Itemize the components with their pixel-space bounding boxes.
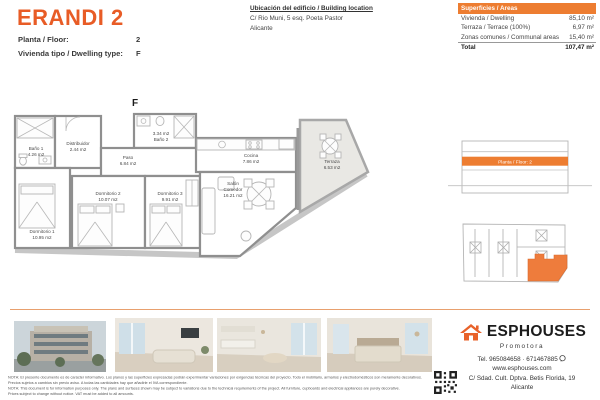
disclaimer: NOTA: El presente documento es de caráct… — [8, 375, 440, 397]
field-dwelling-type-label: Vivienda tipo / Dwelling type: — [18, 49, 136, 58]
building-location-heading: Ubicación del edificio / Building locati… — [250, 4, 420, 14]
room-banio2-name: Baño 2 — [154, 137, 169, 142]
areas-row-communal: Zonas comunes / Communal areas 15,40 m² — [458, 32, 596, 42]
room-dormitorio3-area: 9.91 m2 — [162, 197, 179, 202]
room-salon-name1: Salón — [227, 181, 239, 186]
qr-code — [434, 371, 457, 394]
areas-row-dwelling-label: Vivienda / Dwelling — [461, 15, 514, 22]
room-terraza-name: Terraza — [324, 159, 340, 164]
brand-block: ESPHOUSES Promotora Tel. 965084658 · 671… — [448, 322, 596, 393]
areas-row-total: Total 107,47 m² — [458, 43, 596, 53]
room-terraza-area: 6.53 m2 — [324, 165, 341, 170]
room-cocina-name: Cocina — [244, 153, 259, 158]
areas-row-total-label: Total — [461, 44, 476, 51]
brand-telephone: Tel. 965084658 · 671467885 — [448, 355, 596, 364]
building-location: Ubicación del edificio / Building locati… — [250, 4, 420, 34]
room-paso-name: Paso — [123, 155, 134, 160]
room-dormitorio2-area: 10.07 m2 — [98, 197, 118, 202]
brand-name: ESPHOUSES — [487, 323, 586, 341]
room-dormitorio2-name: Dormitorio 2 — [95, 191, 120, 196]
areas-row-terrace-value: 6,97 m² — [573, 24, 594, 31]
photo-kitchen-living-art — [217, 318, 321, 372]
building-location-address: C/ Rio Muni, 5 esq. Poeta Pastor — [250, 14, 420, 24]
areas-row-communal-value: 15,40 m² — [569, 34, 594, 41]
areas-table: Superficies / Areas Vivienda / Dwelling … — [458, 3, 596, 52]
areas-row-communal-label: Zonas comunes / Communal areas — [461, 34, 559, 41]
room-salon-name2: Comedor — [224, 187, 243, 192]
photo-kitchen-living — [217, 318, 321, 372]
brand-tagline: Promotora — [448, 343, 596, 350]
field-floor-label: Planta / Floor: — [18, 35, 136, 44]
room-distribuidor-area: 2.44 m2 — [70, 147, 87, 152]
areas-row-total-value: 107,47 m² — [565, 44, 594, 51]
brand-website[interactable]: www.esphouses.com — [448, 364, 596, 373]
field-dwelling-type: Vivienda tipo / Dwelling type:F — [18, 49, 141, 58]
room-banio1-area: 4.26 m2 — [28, 152, 45, 157]
floorplan-sheet: { "colors": { "accent": "#e85c26", "tabl… — [0, 0, 600, 400]
field-floor: Planta / Floor:2 — [18, 35, 140, 44]
room-banio1-name: Baño 1 — [29, 146, 44, 151]
areas-row-terrace-label: Terraza / Terrace (100%) — [461, 24, 530, 31]
esphouses-logo-icon — [458, 322, 484, 342]
brand-telephone-text: Tel. 965084658 · 671467885 — [478, 356, 558, 363]
photo-living-room — [115, 318, 213, 372]
room-dormitorio1-name: Dormitorio 1 — [29, 229, 54, 234]
field-dwelling-type-value: F — [136, 49, 141, 58]
building-location-city: Alicante — [250, 24, 420, 34]
room-paso-area: 6.84 m2 — [120, 161, 137, 166]
areas-row-terrace: Terraza / Terrace (100%) 6,97 m² — [458, 23, 596, 32]
room-dormitorio1-area: 10.95 m2 — [32, 235, 52, 240]
page-title: ERANDI 2 — [17, 5, 124, 31]
brand-address: C/ Sdad. Cult. Dptva. Betis Florida, 19 — [448, 374, 596, 383]
key-plan — [463, 224, 567, 282]
photo-building-exterior-art — [14, 321, 106, 372]
side-diagrams: Planta / Floor: 2 — [445, 135, 595, 305]
photo-bedroom-art — [327, 318, 432, 372]
room-dormitorio3-name: Dormitorio 3 — [157, 191, 182, 196]
building-section-diagram: Planta / Floor: 2 — [448, 141, 592, 193]
areas-table-title: Superficies / Areas — [458, 3, 596, 14]
photo-bedroom — [327, 318, 432, 372]
room-banio2-area: 3.34 m2 — [153, 131, 170, 136]
areas-row-dwelling: Vivienda / Dwelling 85,10 m² — [458, 14, 596, 23]
areas-row-dwelling-value: 85,10 m² — [569, 15, 594, 22]
photo-building-exterior — [14, 321, 106, 372]
orange-divider-line — [10, 309, 590, 310]
room-salon-area: 16.21 m2 — [223, 193, 243, 198]
photo-living-room-art — [115, 318, 213, 372]
room-distribuidor-name: Distribuidor — [66, 141, 90, 146]
brand-city: Alicante — [448, 383, 596, 392]
whatsapp-icon — [559, 355, 566, 362]
disclaimer-line-4: Prices subject to change without notice.… — [8, 391, 440, 396]
floor-plan: F — [8, 90, 373, 312]
section-floor-label: Planta / Floor: 2 — [498, 159, 532, 165]
room-cocina-area: 7.86 m2 — [243, 159, 260, 164]
field-floor-value: 2 — [136, 35, 140, 44]
unit-letter: F — [132, 98, 138, 109]
